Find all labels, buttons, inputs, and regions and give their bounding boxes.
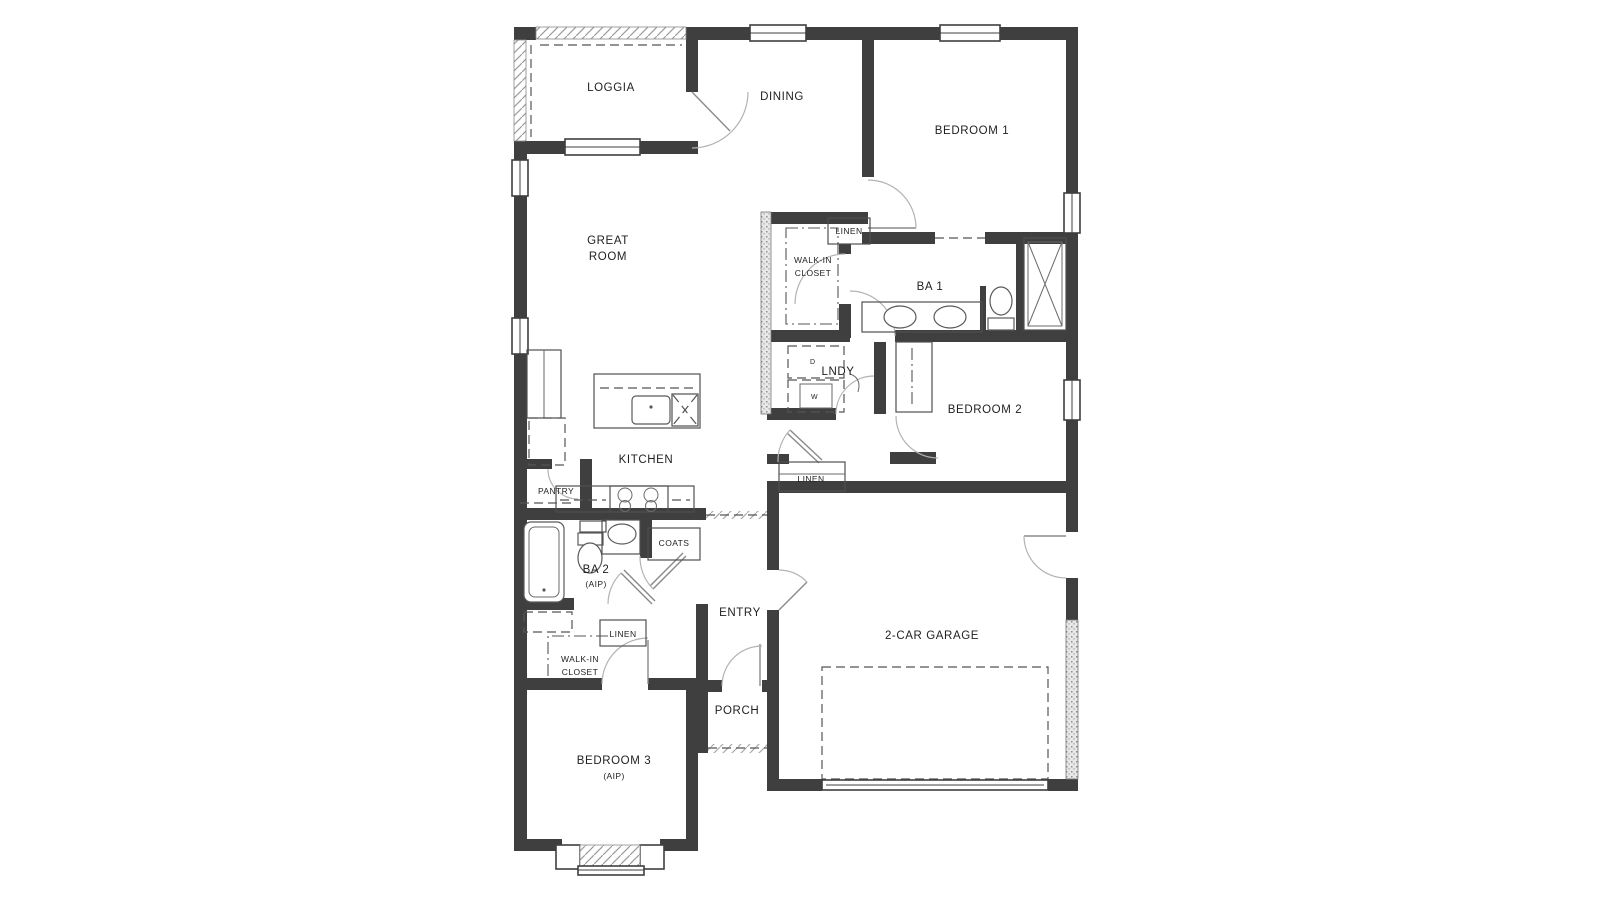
garage-label: 2-CAR GARAGE bbox=[885, 630, 979, 642]
burner bbox=[644, 488, 658, 502]
loggia-label: LOGGIA bbox=[587, 82, 635, 94]
vanity bbox=[602, 520, 640, 554]
refrigerator-cabinets bbox=[527, 350, 565, 465]
kitchen-sink bbox=[632, 396, 670, 424]
pantry-label: PANTRY bbox=[538, 486, 574, 496]
coats-label: COATS bbox=[659, 538, 690, 548]
floor-plan-page: D W LOGGIA DINING BEDROOM 1 GREAT ROOM L… bbox=[0, 0, 1600, 900]
room-labels: LOGGIA DINING BEDROOM 1 GREAT ROOM LINEN… bbox=[538, 82, 1022, 781]
linen-hall-label: LINEN bbox=[797, 474, 824, 484]
bath2-shelf bbox=[524, 612, 572, 632]
porch-label: PORCH bbox=[715, 705, 760, 717]
garage-door bbox=[822, 780, 1048, 790]
bath1-label: BA 1 bbox=[917, 281, 944, 293]
bath2-sublabel: (AIP) bbox=[585, 579, 606, 589]
window-greatroom-upper bbox=[512, 160, 528, 196]
washer-label: W bbox=[811, 394, 818, 401]
laundry-label: LNDY bbox=[821, 366, 854, 378]
dryer-label: D bbox=[810, 359, 815, 366]
door-bedroom2 bbox=[896, 416, 938, 458]
door-coats bbox=[640, 553, 686, 589]
walkin2-label-1: WALK-IN bbox=[561, 654, 599, 664]
burner bbox=[618, 488, 632, 502]
window-greatroom-lower bbox=[512, 318, 528, 354]
door-walkin-closet-2 bbox=[602, 638, 648, 684]
door-garage-side bbox=[1024, 536, 1066, 578]
walkin2-label-2: CLOSET bbox=[562, 667, 598, 677]
great-room-label-2: ROOM bbox=[589, 251, 627, 263]
window-bedroom1-top bbox=[940, 25, 1000, 41]
doors bbox=[548, 92, 1066, 686]
linen2-label: LINEN bbox=[609, 629, 636, 639]
garage-elements bbox=[822, 667, 1048, 790]
kitchen-label: KITCHEN bbox=[619, 454, 674, 466]
toilet bbox=[988, 287, 1014, 330]
entry-label: ENTRY bbox=[719, 607, 761, 619]
garage-door-clearance bbox=[822, 667, 1048, 779]
window-bedroom1-right bbox=[1064, 193, 1080, 233]
bath2-label: BA 2 bbox=[583, 564, 610, 576]
great-room-label-1: GREAT bbox=[587, 235, 629, 247]
bedroom1-label: BEDROOM 1 bbox=[935, 125, 1009, 137]
bath1-fixtures bbox=[862, 238, 1066, 332]
linen-bath1-label: LINEN bbox=[835, 226, 862, 236]
door-bedroom1 bbox=[868, 180, 916, 228]
bedroom2-closet bbox=[896, 342, 932, 412]
bathtub bbox=[524, 522, 564, 602]
bedroom3-bay-window bbox=[556, 845, 664, 875]
plumbing-wall-texture bbox=[761, 212, 1078, 779]
dishwasher bbox=[672, 394, 698, 426]
walkin1-label-1: WALK-IN bbox=[794, 255, 832, 265]
sink bbox=[884, 306, 916, 328]
door-laundry bbox=[836, 376, 874, 414]
bedroom3-label: BEDROOM 3 bbox=[577, 755, 651, 767]
window-loggia bbox=[565, 139, 640, 155]
door-front bbox=[722, 644, 762, 686]
bath2-fixtures bbox=[524, 520, 640, 632]
bedroom2-label: BEDROOM 2 bbox=[948, 404, 1022, 416]
door-loggia-dining bbox=[692, 92, 748, 148]
window-bedroom2-right bbox=[1064, 380, 1080, 420]
door-bath2 bbox=[608, 570, 655, 604]
sink bbox=[934, 306, 966, 328]
shower bbox=[1024, 238, 1066, 330]
floor-plan-drawing: D W LOGGIA DINING BEDROOM 1 GREAT ROOM L… bbox=[0, 0, 1600, 900]
door-house-to-garage bbox=[779, 570, 807, 610]
window-dining bbox=[750, 25, 806, 41]
sink bbox=[608, 524, 636, 544]
bedroom3-sublabel: (AIP) bbox=[603, 771, 624, 781]
kitchen-island bbox=[594, 374, 700, 428]
walkin1-label-2: CLOSET bbox=[795, 268, 831, 278]
laundry-fixtures: D W bbox=[788, 346, 859, 412]
dining-label: DINING bbox=[760, 91, 804, 103]
